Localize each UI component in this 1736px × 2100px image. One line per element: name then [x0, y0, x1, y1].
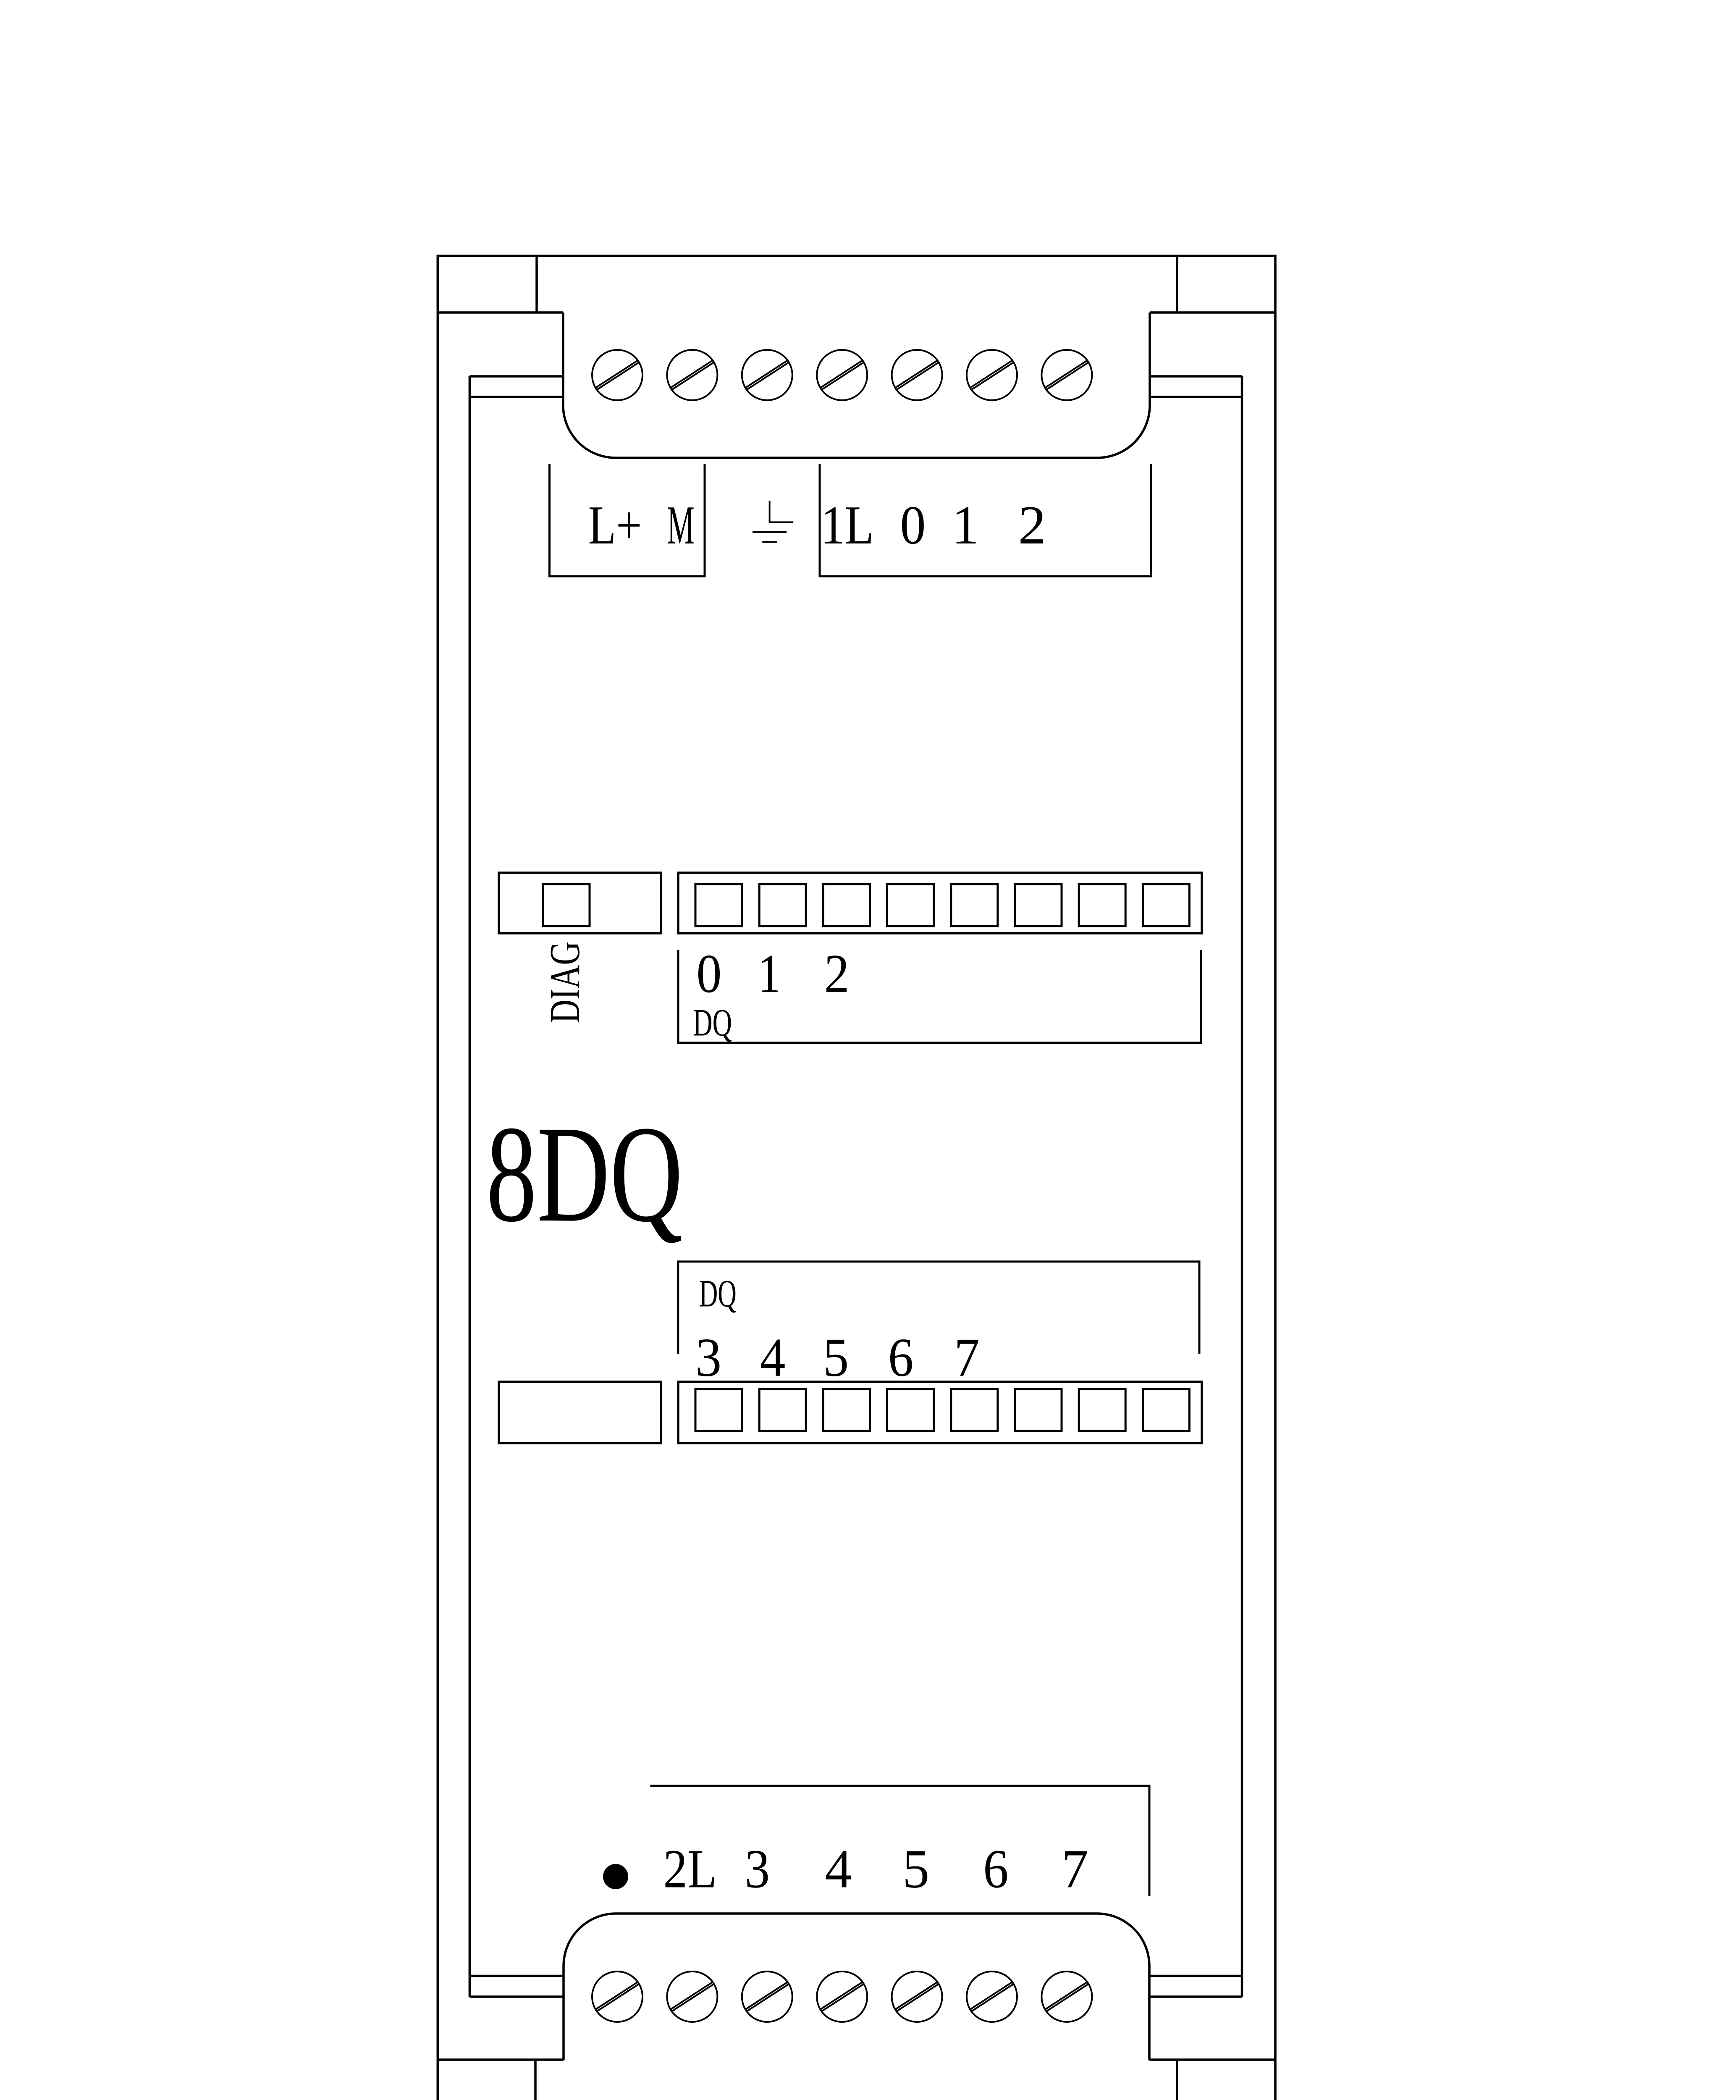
svg-text:7: 7: [954, 1327, 980, 1388]
svg-text:3: 3: [745, 1838, 770, 1899]
svg-text:DQ: DQ: [699, 1272, 737, 1315]
svg-text:7: 7: [1062, 1838, 1088, 1899]
svg-text:1: 1: [952, 495, 979, 556]
svg-text:0: 0: [900, 495, 926, 556]
svg-text:4: 4: [825, 1839, 852, 1900]
svg-text:3: 3: [695, 1327, 722, 1388]
svg-text:M: M: [667, 494, 695, 556]
svg-text:DIAG: DIAG: [541, 942, 589, 1024]
svg-text:5: 5: [823, 1327, 849, 1388]
svg-text:6: 6: [888, 1327, 913, 1388]
svg-text:DQ: DQ: [693, 1001, 732, 1044]
svg-text:2: 2: [1018, 494, 1046, 556]
svg-text:5: 5: [902, 1838, 929, 1899]
svg-text:2L: 2L: [663, 1838, 717, 1900]
svg-text:1L: 1L: [821, 495, 874, 555]
svg-text:L+: L+: [588, 495, 642, 556]
svg-text:1: 1: [758, 943, 781, 1004]
svg-text:0: 0: [696, 943, 721, 1004]
svg-text:4: 4: [760, 1327, 786, 1388]
svg-text:2: 2: [824, 943, 850, 1004]
svg-text:6: 6: [983, 1839, 1008, 1899]
svg-text:8DQ: 8DQ: [486, 1098, 683, 1251]
